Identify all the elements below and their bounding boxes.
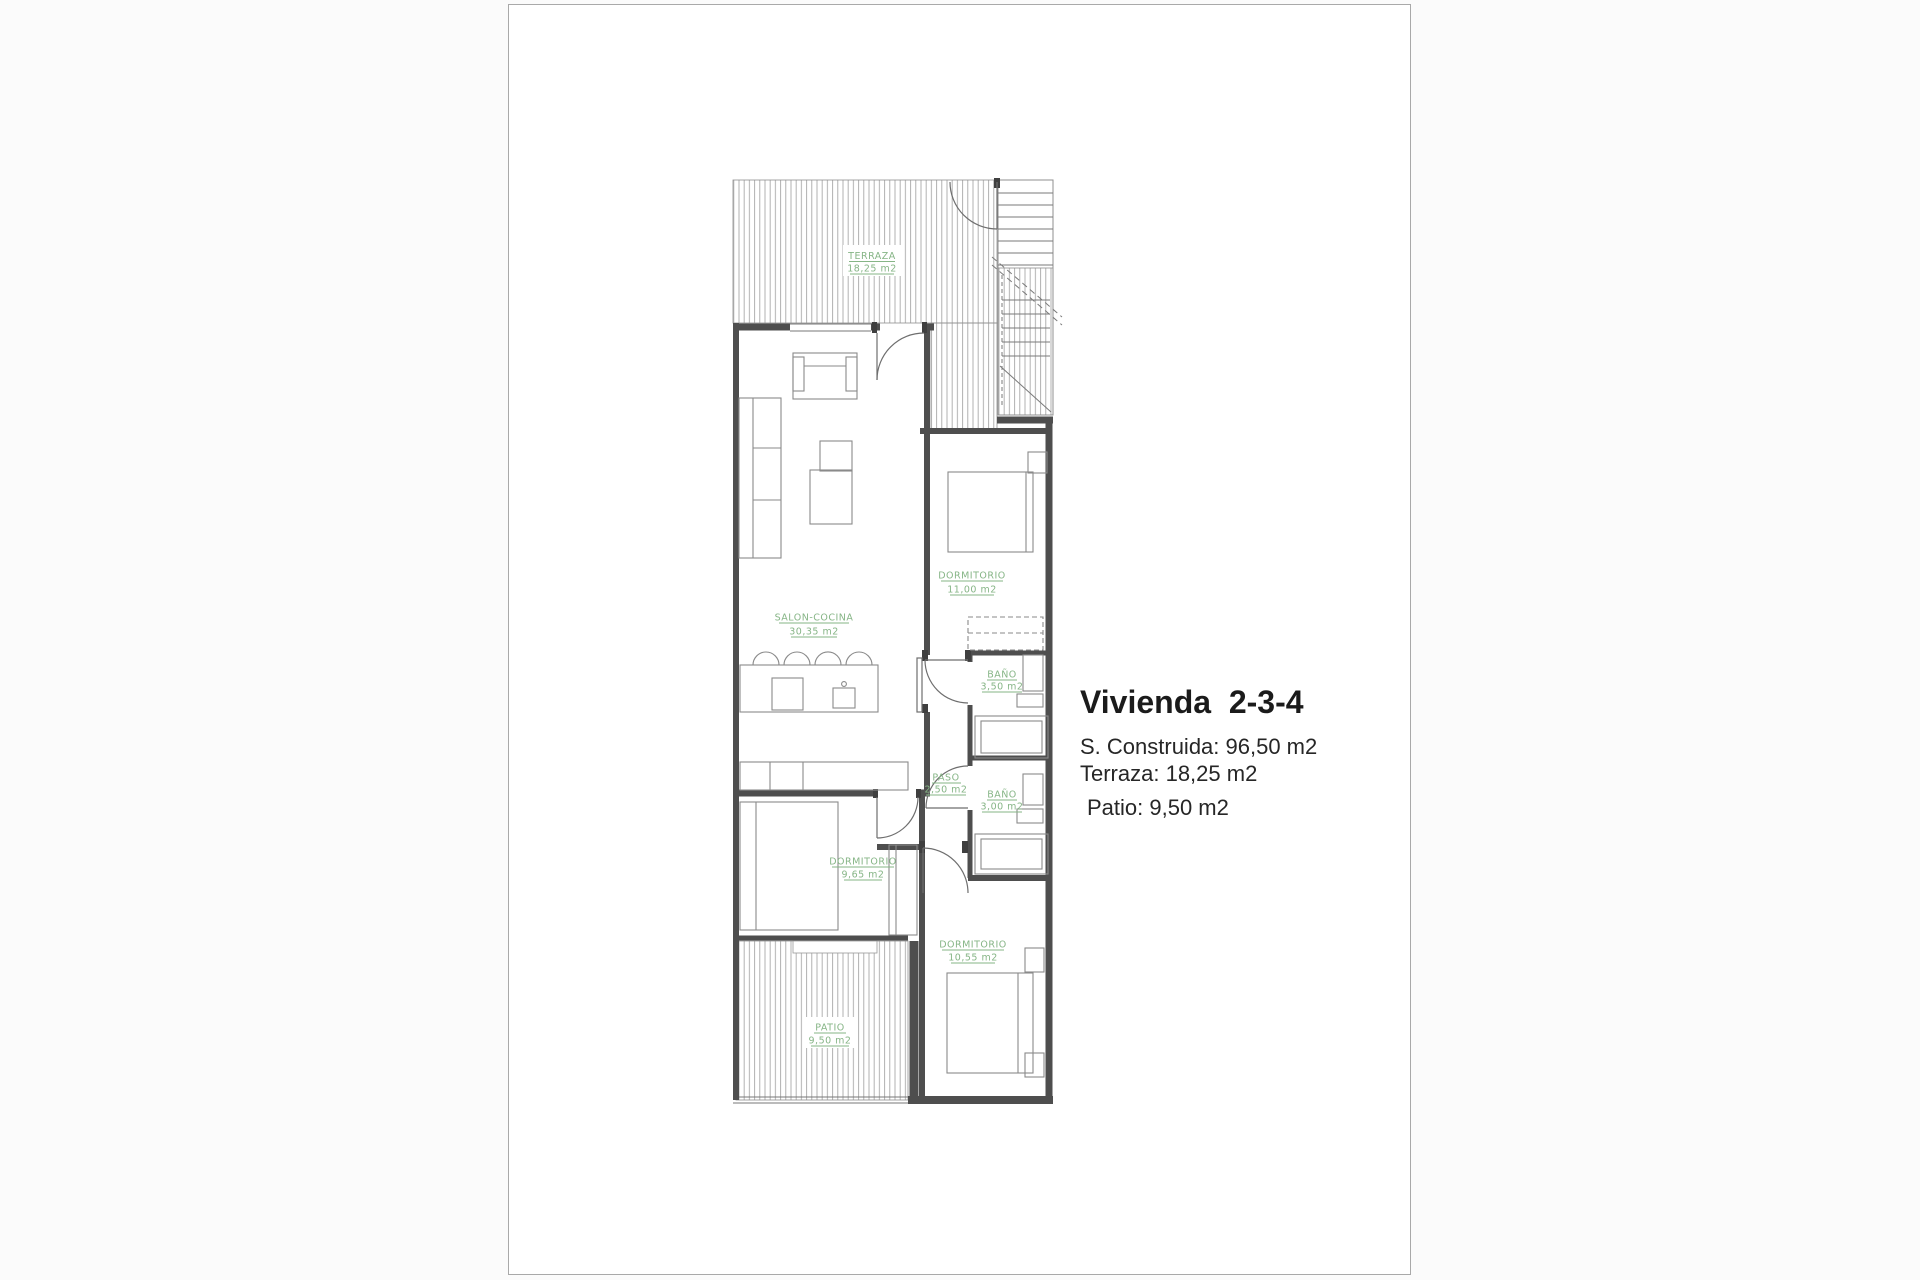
dormitorio2-door-arc xyxy=(877,797,918,838)
bano1-door-arc xyxy=(925,660,968,703)
room-label-terraza: TERRAZA xyxy=(847,251,896,262)
room-area-dormitorio-3: 10,55 m2 xyxy=(948,953,998,964)
room-label-dormitorio-3: DORMITORIO xyxy=(939,940,1007,951)
dormitorio3-door-arc xyxy=(923,848,968,893)
room-area-dormitorio-1: 11,00 m2 xyxy=(947,585,997,596)
room-area-salon-cocina: 30,35 m2 xyxy=(789,627,839,638)
room-area-patio: 9,50 m2 xyxy=(809,1036,852,1047)
info-patio-area: Patio: 9,50 m2 xyxy=(1087,795,1229,821)
floor-plan-drawing: TERRAZA 18,25 m2 SALON-COCINA 30,35 m2 D… xyxy=(0,0,1920,1280)
room-label-patio: PATIO xyxy=(815,1023,844,1034)
info-constructed-area: S. Construida: 96,50 m2 xyxy=(1080,734,1317,760)
room-label-bano-1: BAÑO xyxy=(987,670,1017,681)
room-area-paso: 2,50 m2 xyxy=(925,785,968,796)
room-label-dormitorio-1: DORMITORIO xyxy=(938,571,1006,582)
room-label-paso: PASO xyxy=(932,773,959,784)
salon-terraza-door-arc xyxy=(877,333,924,380)
room-label-bano-2: BAÑO xyxy=(987,790,1017,801)
terraza-side-hatch xyxy=(931,323,997,429)
salon-paso-slider xyxy=(917,658,922,712)
room-label-salon-cocina: SALON-COCINA xyxy=(775,613,854,624)
room-area-bano-2: 3,00 m2 xyxy=(981,802,1024,813)
unit-title: Vivienda 2-3-4 xyxy=(1080,686,1304,718)
room-area-dormitorio-2: 9,65 m2 xyxy=(842,870,885,881)
room-label-dormitorio-2: DORMITORIO xyxy=(829,857,897,868)
hatch-areas xyxy=(733,180,1053,1100)
screenshot-canvas: TERRAZA 18,25 m2 SALON-COCINA 30,35 m2 D… xyxy=(0,0,1920,1280)
patio-step xyxy=(793,941,877,953)
room-area-terraza: 18,25 m2 xyxy=(847,264,897,275)
room-area-bano-1: 3,50 m2 xyxy=(981,682,1024,693)
info-terrace-area: Terraza: 18,25 m2 xyxy=(1080,761,1257,787)
